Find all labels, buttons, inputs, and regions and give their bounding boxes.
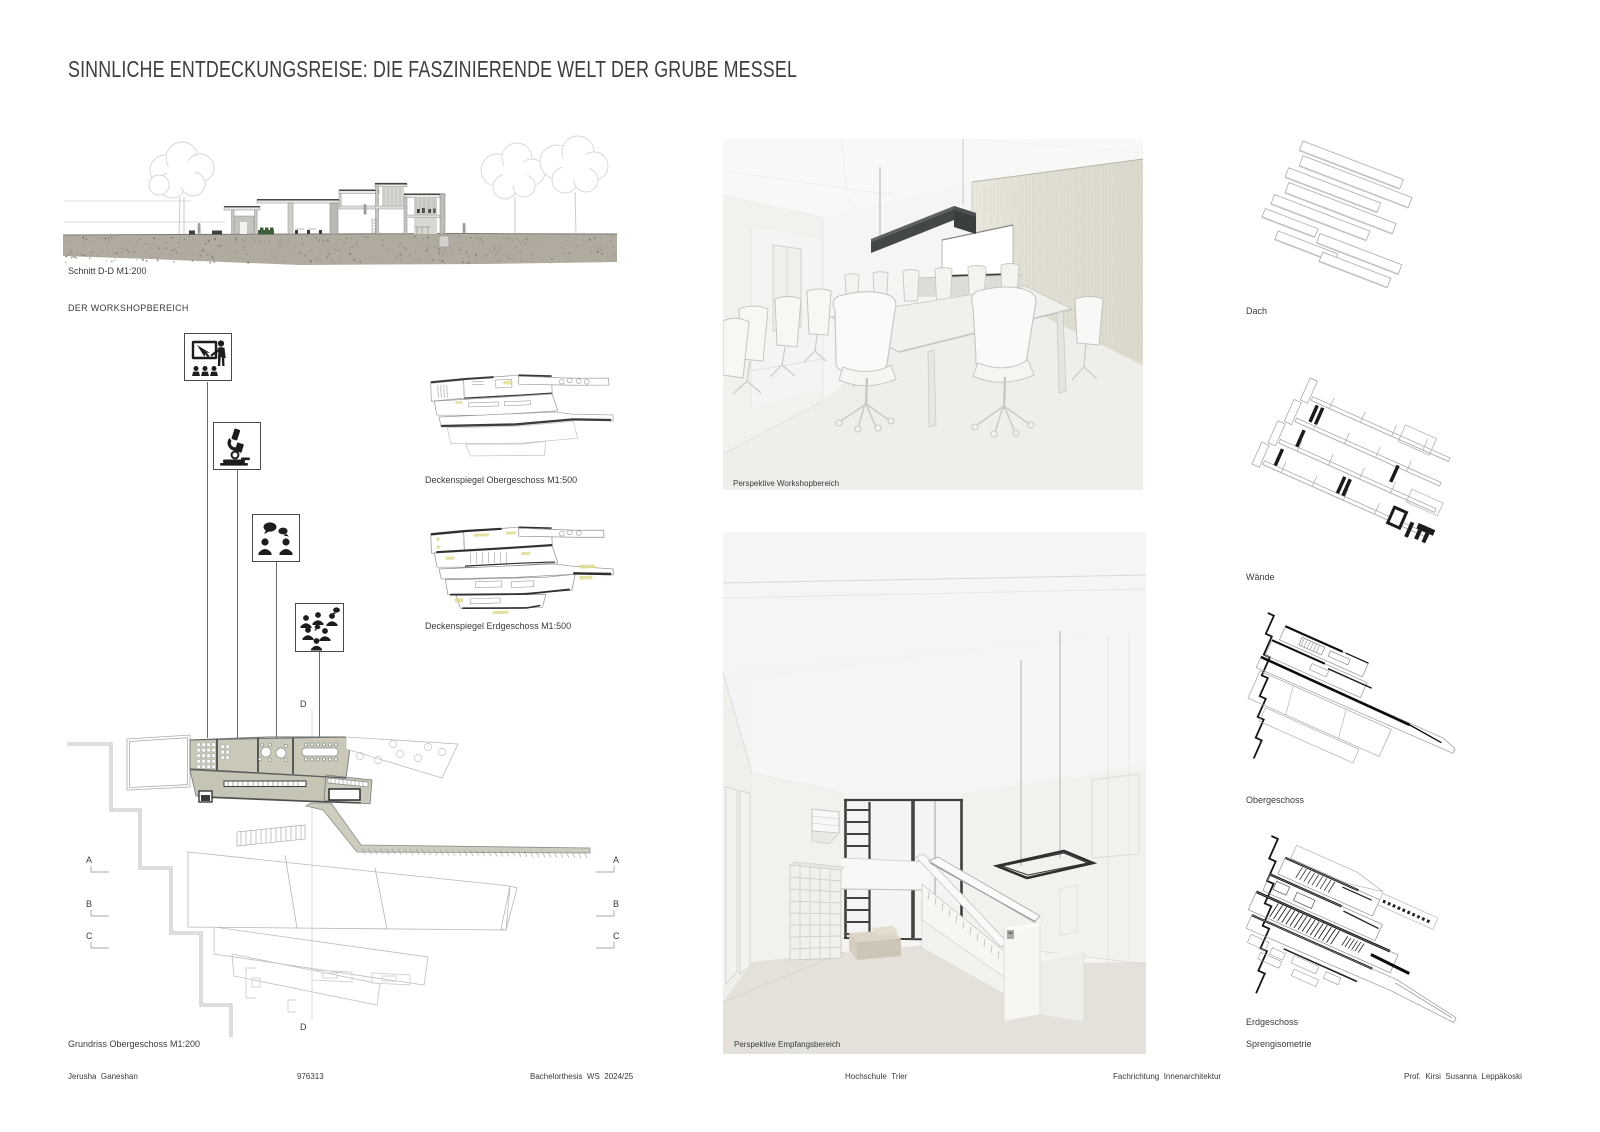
svg-text:D: D (300, 700, 307, 709)
svg-text:B: B (86, 899, 92, 909)
svg-text:B: B (613, 899, 619, 909)
svg-text:C: C (86, 931, 93, 941)
svg-text:C: C (613, 931, 620, 941)
svg-text:A: A (613, 855, 619, 865)
svg-text:A: A (86, 855, 92, 865)
svg-text:D: D (300, 1022, 307, 1032)
